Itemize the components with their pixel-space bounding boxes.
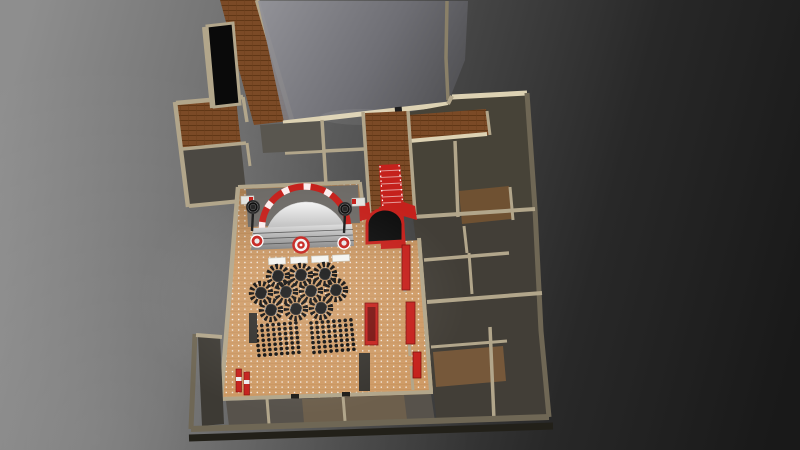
service-room-floor xyxy=(260,121,322,153)
render-viewport xyxy=(0,0,800,450)
gray-room-east-wall xyxy=(446,1,448,100)
hall-light-glow xyxy=(137,185,467,415)
annex-wood-room-floor xyxy=(177,99,241,150)
floorplan-render xyxy=(0,0,800,450)
east-wing-wood-room xyxy=(459,186,512,224)
large-gray-room xyxy=(258,1,468,125)
